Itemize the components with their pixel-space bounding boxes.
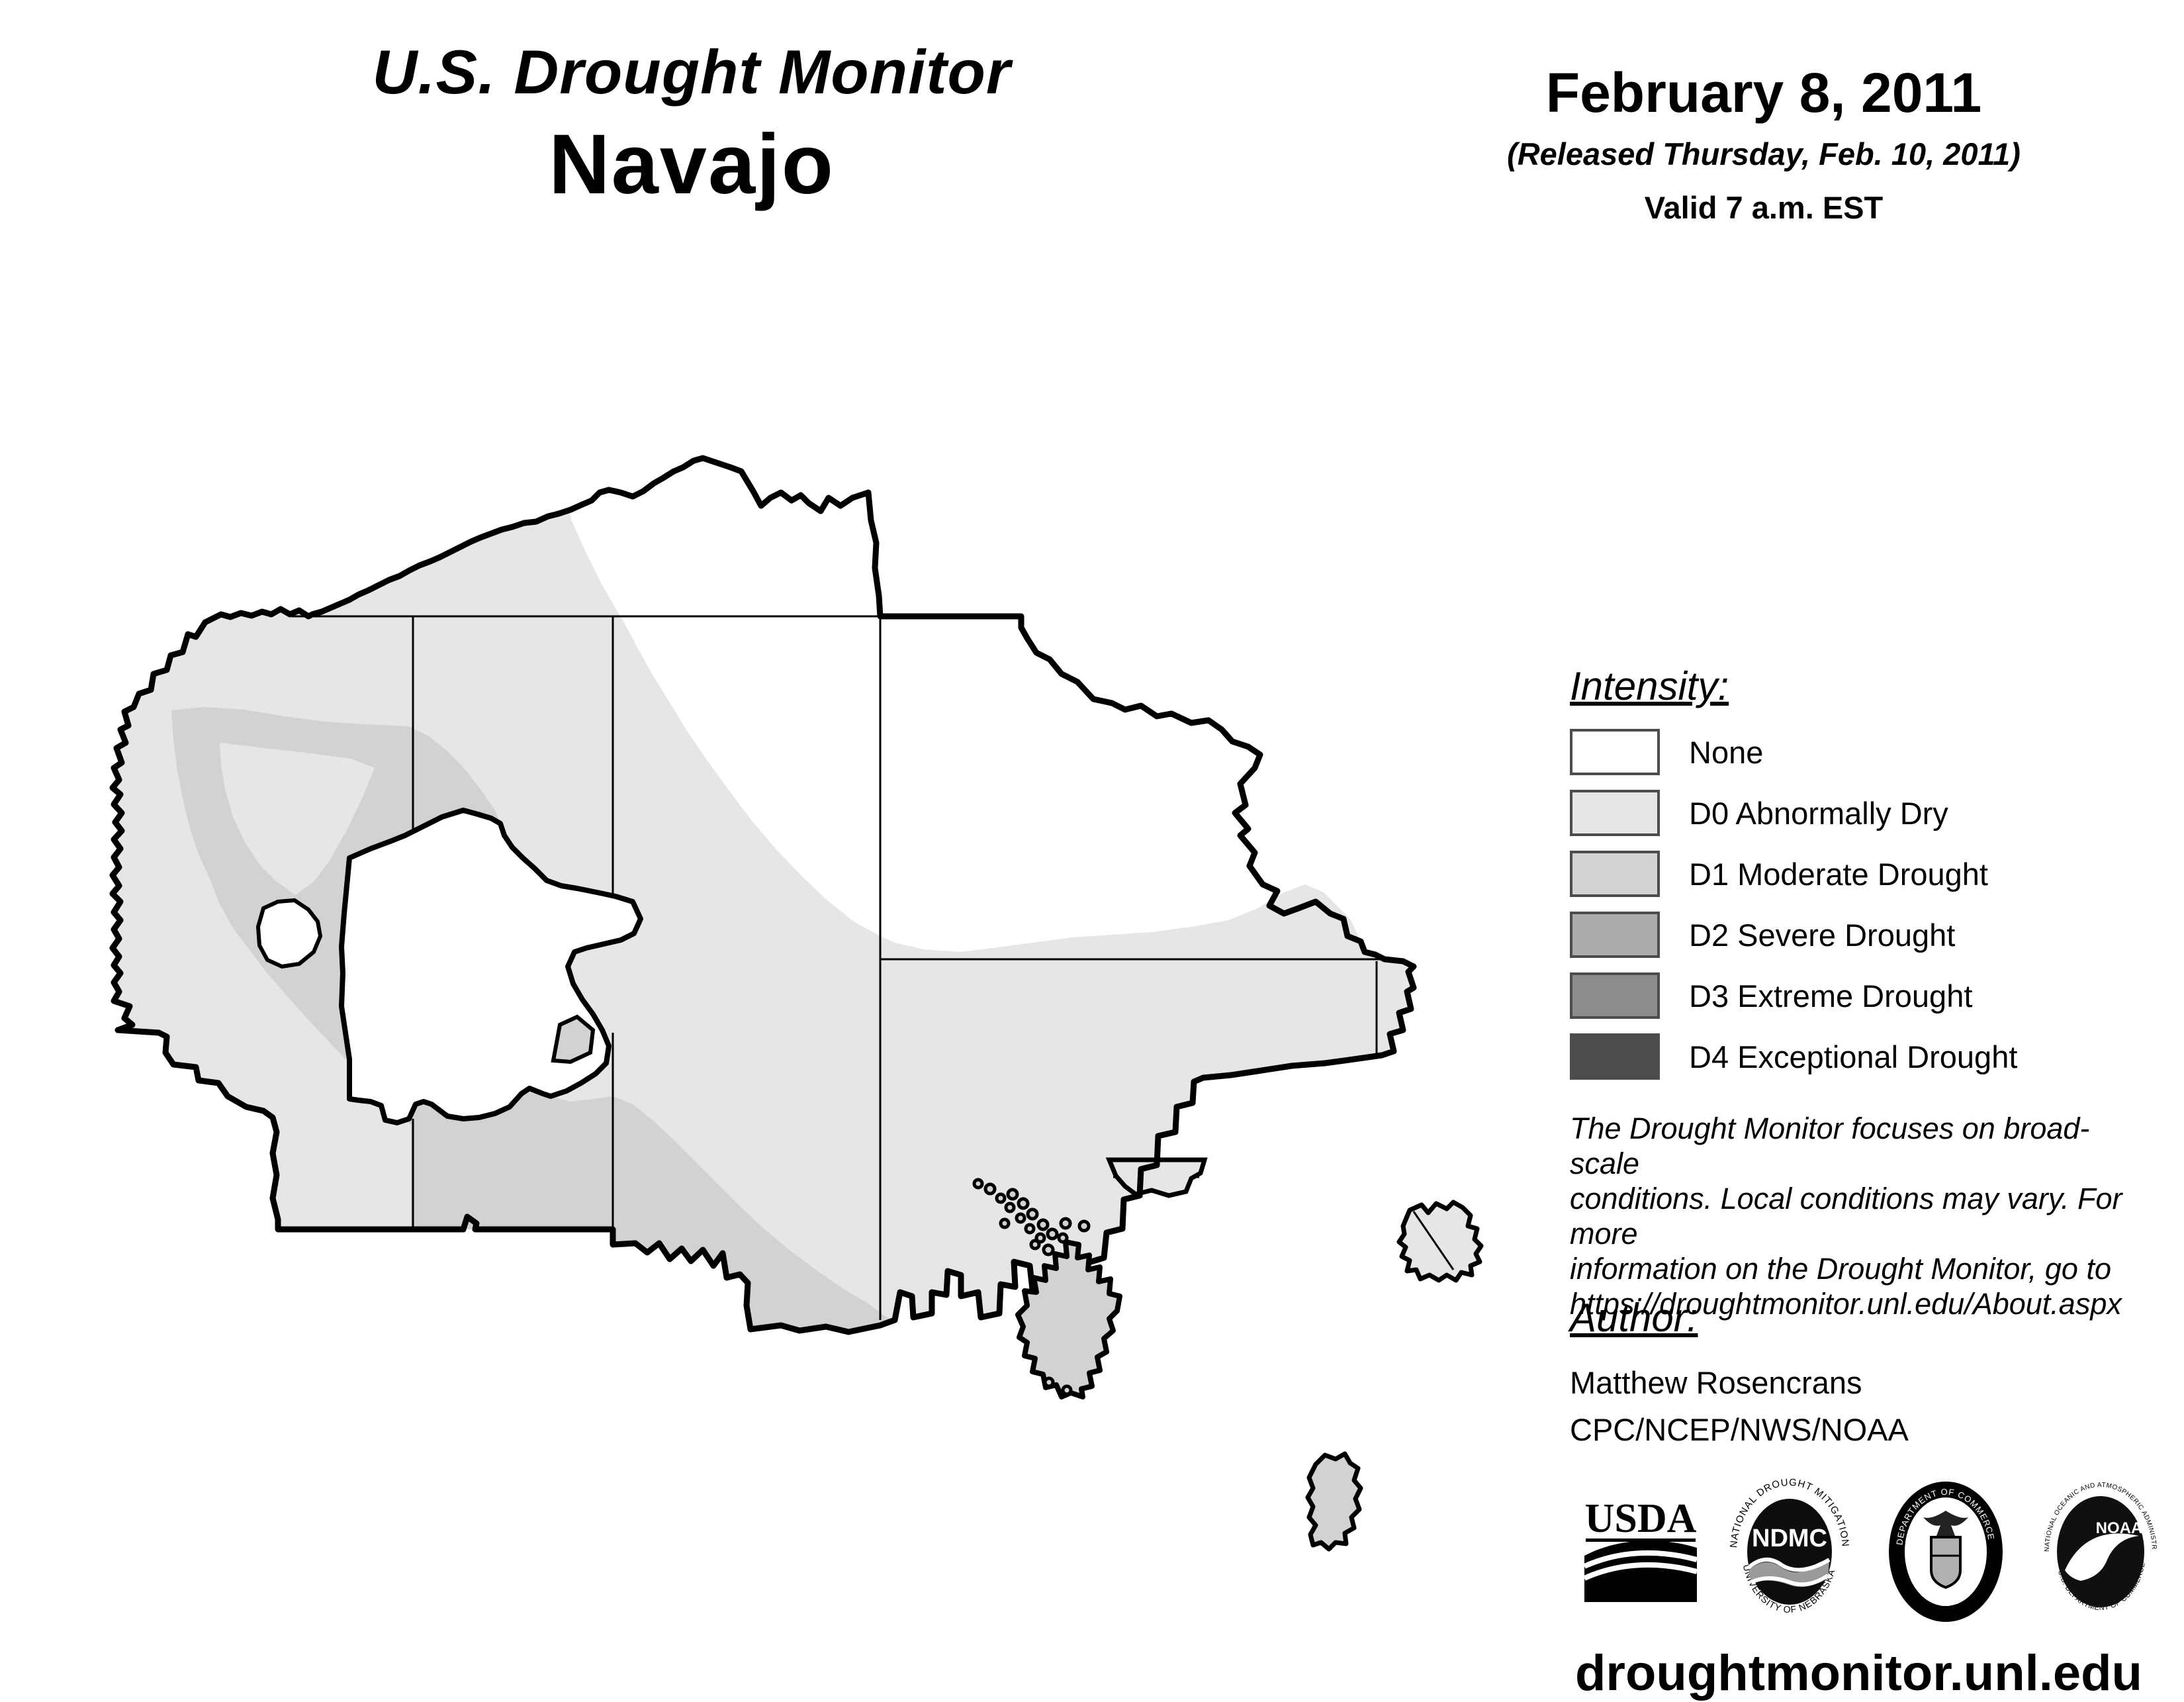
doc-shield-icon — [1931, 1537, 1960, 1587]
map-tohajiilee-parcel — [1399, 1202, 1481, 1280]
valid-time: Valid 7 a.m. EST — [1430, 189, 2098, 226]
disclaimer-line: conditions. Local conditions may vary. F… — [1570, 1181, 2152, 1251]
ndmc-logo: NATIONAL DROUGHT MITIGATION CENTER UNIVE… — [1729, 1478, 1851, 1627]
legend-swatch-d1 — [1570, 851, 1660, 897]
noaa-logo: NATIONAL OCEANIC AND ATMOSPHERIC ADMINIS… — [2040, 1478, 2162, 1627]
legend-label: D4 Exceptional Drought — [1689, 1039, 2017, 1075]
usda-logo-text: USDA — [1585, 1497, 1697, 1541]
legend-label: D0 Abnormally Dry — [1689, 795, 1948, 831]
legend-row-d4: D4 Exceptional Drought — [1570, 1035, 2165, 1078]
map-date: February 8, 2011 — [1430, 61, 2098, 125]
disclaimer-line: The Drought Monitor focuses on broad-sca… — [1570, 1111, 2152, 1181]
legend-row-d0: D0 Abnormally Dry — [1570, 791, 2165, 835]
legend-swatch-none — [1570, 729, 1660, 775]
legend-row-d2: D2 Severe Drought — [1570, 913, 2165, 957]
map-jeddito-island — [553, 1017, 593, 1062]
noaa-logo-text: NOAA — [2096, 1519, 2143, 1537]
legend-rows: None D0 Abnormally Dry D1 Moderate Droug… — [1570, 730, 2165, 1078]
legend-swatch-d4 — [1570, 1033, 1660, 1080]
author-block: Author: Matthew Rosencrans CPC/NCEP/NWS/… — [1570, 1295, 2152, 1448]
commerce-logo: DEPARTMENT OF COMMERCE UNITED STATES OF … — [1885, 1478, 2007, 1627]
legend-swatch-d3 — [1570, 972, 1660, 1019]
legend-row-d1: D1 Moderate Drought — [1570, 852, 2165, 896]
usda-logo: USDA — [1583, 1497, 1699, 1607]
author-name: Matthew Rosencrans — [1570, 1364, 2152, 1401]
droughtmonitor-url: droughtmonitor.unl.edu — [1575, 1644, 2138, 1702]
legend-row-none: None — [1570, 730, 2165, 774]
legend-label: None — [1689, 734, 1763, 771]
map-white-enclave — [258, 900, 320, 967]
author-org: CPC/NCEP/NWS/NOAA — [1570, 1411, 2152, 1448]
legend-swatch-d0 — [1570, 790, 1660, 836]
title-block: U.S. Drought Monitor Navajo — [278, 36, 1105, 213]
disclaimer-line: information on the Drought Monitor, go t… — [1570, 1251, 2152, 1286]
date-block: February 8, 2011 (Released Thursday, Feb… — [1430, 61, 2098, 226]
release-date: (Released Thursday, Feb. 10, 2011) — [1430, 136, 2098, 172]
author-heading: Author: — [1570, 1295, 2152, 1341]
legend-row-d3: D3 Extreme Drought — [1570, 974, 2165, 1017]
ndmc-logo-text: NDMC — [1752, 1525, 1827, 1552]
intensity-legend: Intensity: None D0 Abnormally Dry D1 Mod… — [1570, 663, 2165, 1096]
legend-label: D2 Severe Drought — [1689, 917, 1955, 953]
map-alamo-parcel — [1308, 1454, 1361, 1549]
region-title: Navajo — [278, 116, 1105, 213]
legend-heading: Intensity: — [1570, 663, 2165, 709]
page-title: U.S. Drought Monitor — [278, 36, 1105, 108]
legend-label: D1 Moderate Drought — [1689, 856, 1988, 892]
disclaimer-text: The Drought Monitor focuses on broad-sca… — [1570, 1111, 2152, 1321]
legend-label: D3 Extreme Drought — [1689, 978, 1972, 1014]
legend-swatch-d2 — [1570, 912, 1660, 958]
